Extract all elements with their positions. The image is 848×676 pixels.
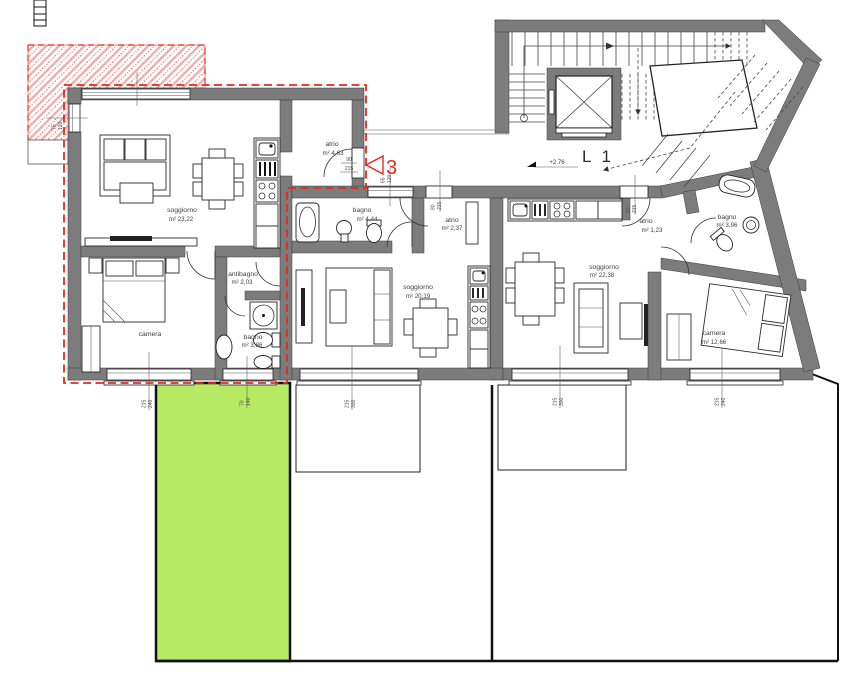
room-area-c-atrio: m² 1,23: [642, 227, 664, 234]
svg-text:300: 300: [351, 399, 357, 408]
room-label-c-bagno: bagno: [718, 214, 737, 221]
level-marker: +2.76: [527, 160, 578, 167]
svg-text:120: 120: [58, 121, 64, 130]
elevator-icon: [549, 76, 612, 137]
room-label-c-atrio: atrio: [639, 218, 652, 225]
room-area-a3-soggiorno: m² 23,22: [169, 216, 194, 223]
private-garden-unit3: [156, 383, 290, 661]
floor-plan-page: 3 90 215 +2.76 L 1 soggiorno m² 23,22 ca…: [0, 0, 848, 676]
room-area-b-atrio: m² 2,37: [442, 225, 464, 232]
svg-text:70: 70: [240, 400, 246, 406]
room-label-b-bagno: bagno: [353, 207, 372, 214]
door-height-dim: 215: [345, 166, 354, 172]
floor-plan-canvas: 3 90 215 +2.76 L 1 soggiorno m² 23,22 ca…: [0, 0, 848, 676]
svg-text:215: 215: [715, 397, 721, 406]
room-label-a3-soggiorno: soggiorno: [167, 207, 197, 214]
kitchen-b: [468, 266, 490, 368]
room-area-a3-antibagno: m² 2,03: [232, 279, 254, 286]
survey-mark-icon: [34, 0, 46, 26]
stair-landing: [650, 60, 757, 136]
room-area-b-bagno: m² 4,44: [357, 216, 379, 223]
room-area-c-bagno: m² 3,96: [717, 222, 739, 229]
svg-text:215: 215: [437, 201, 443, 210]
elevation-label: +2.76: [549, 160, 565, 166]
svg-text:80: 80: [626, 207, 632, 213]
room-label-a3-camera: camera: [139, 331, 162, 338]
svg-text:65: 65: [381, 177, 387, 183]
svg-text:240: 240: [721, 397, 727, 406]
room-label-a3-bagno: bagno: [244, 334, 263, 341]
svg-text:120: 120: [387, 174, 393, 183]
room-label-c-camera: camera: [703, 330, 726, 337]
room-label-a3-atrio: atrio: [325, 141, 338, 148]
door-width-dim: 90: [346, 157, 352, 163]
kitchen-c: [508, 199, 622, 221]
svg-text:215: 215: [632, 204, 638, 213]
svg-text:140: 140: [246, 397, 252, 406]
room-area-a3-bagno: m² 3,86: [242, 342, 264, 349]
room-label-c-soggiorno: soggiorno: [589, 264, 619, 271]
svg-text:215: 215: [142, 399, 148, 408]
svg-text:215: 215: [553, 397, 559, 406]
svg-text:300: 300: [559, 397, 565, 406]
walkway-edge: [364, 130, 509, 134]
room-area-a3-atrio: m² 4,63: [323, 150, 345, 157]
room-label-a3-antibagno: antibagno: [228, 271, 258, 278]
svg-text:240: 240: [148, 399, 154, 408]
room-area-c-camera: m² 12,66: [702, 339, 727, 346]
room-label-b-soggiorno: soggiorno: [403, 284, 433, 291]
room-area-c-soggiorno: m² 22,38: [590, 272, 615, 279]
kitchen-a3: [254, 138, 280, 248]
svg-text:80: 80: [431, 204, 437, 210]
level-label: L 1: [582, 147, 614, 166]
room-area-b-soggiorno: m² 20,19: [406, 293, 431, 300]
svg-text:215: 215: [345, 399, 351, 408]
room-label-b-atrio: atrio: [445, 217, 458, 224]
svg-text:75: 75: [52, 124, 58, 130]
